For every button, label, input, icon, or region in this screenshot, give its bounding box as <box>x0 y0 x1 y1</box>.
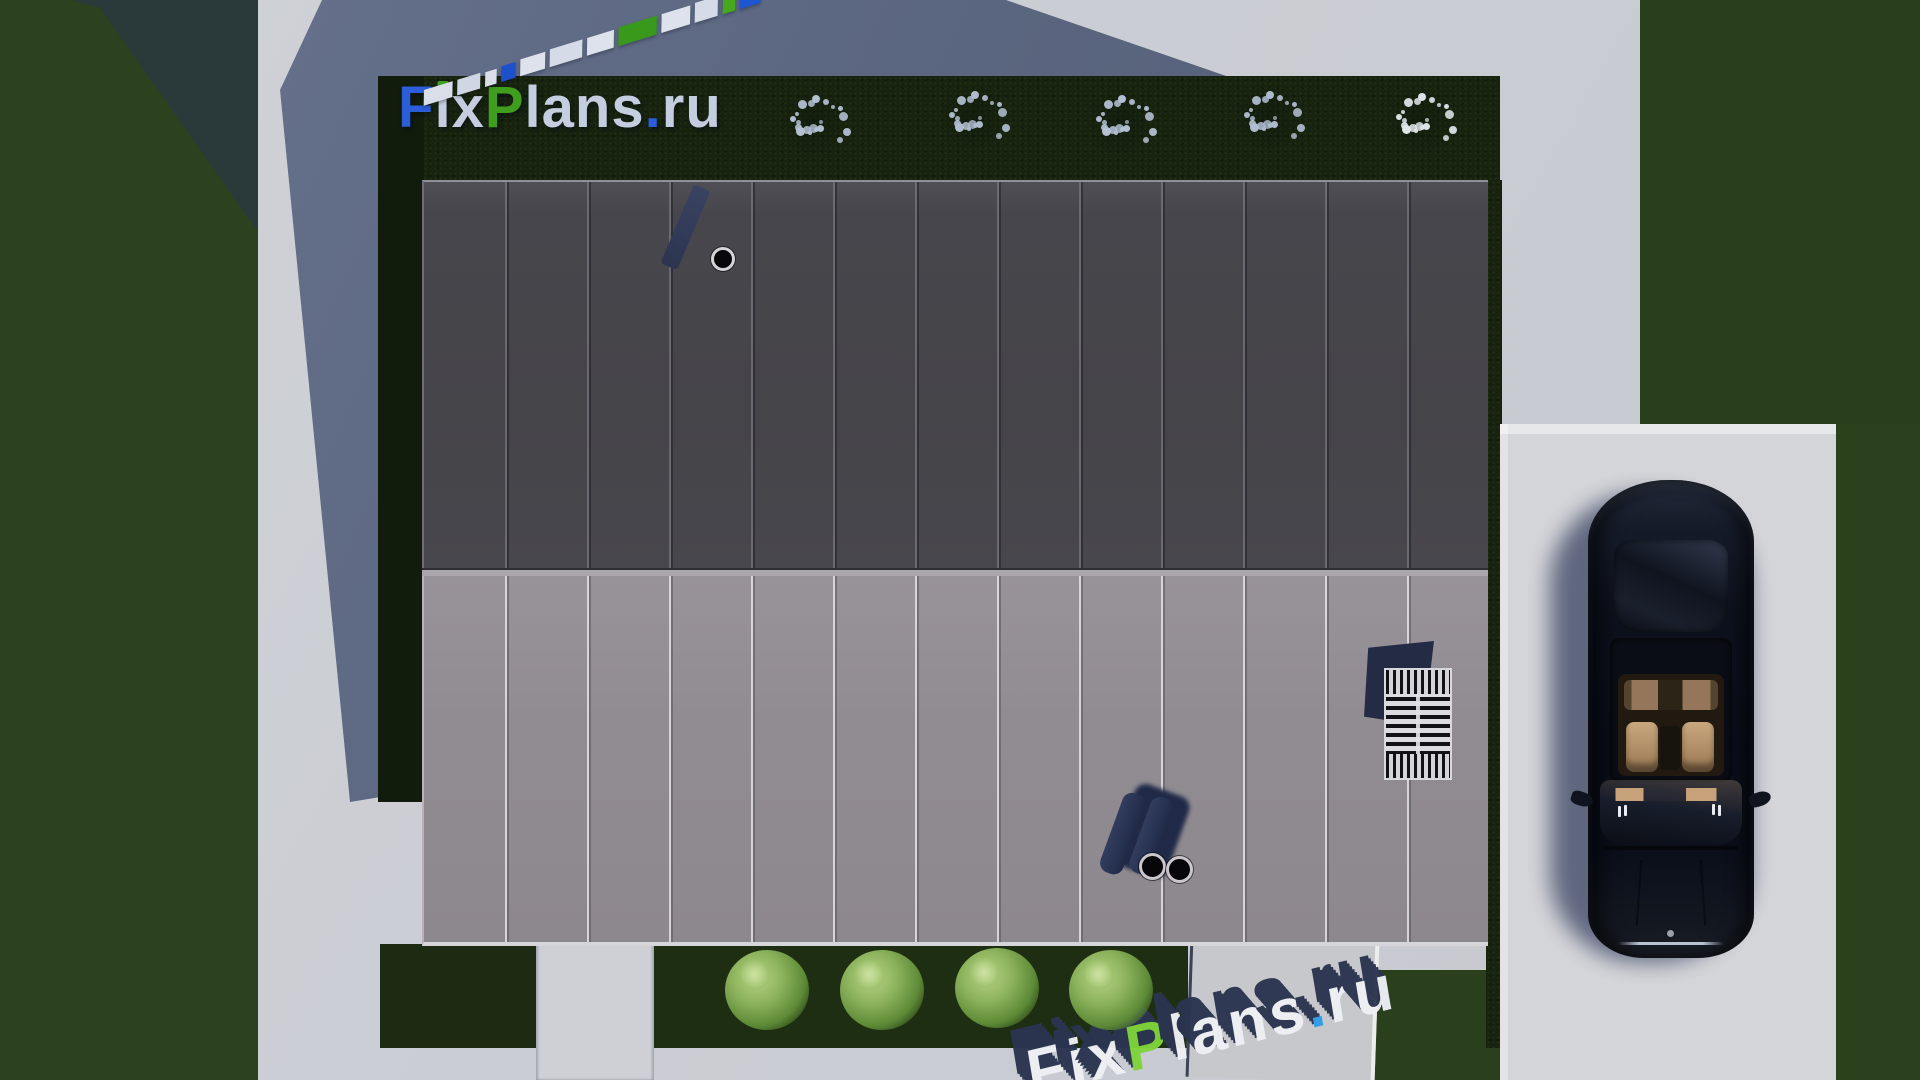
flower-dot <box>1114 100 1121 107</box>
flower-dot <box>1262 96 1269 103</box>
flower-dot <box>954 108 958 112</box>
flower-dot <box>1249 108 1253 112</box>
roof-seam <box>751 576 753 942</box>
roof-lower-section <box>422 576 1488 946</box>
vent-pipe-opening <box>1139 853 1166 880</box>
white-flower-bush <box>1078 82 1162 162</box>
flower-dot <box>1129 99 1135 105</box>
entry-walkway <box>536 944 654 1080</box>
flower-dot <box>1429 97 1435 103</box>
hedge-left <box>378 76 424 802</box>
flower-dot <box>1449 126 1457 134</box>
roof-seam <box>1325 182 1327 568</box>
flower-dot <box>838 106 843 111</box>
lawn-right-strip <box>1836 424 1920 1080</box>
flower-dot <box>1291 133 1297 139</box>
chimney-vent <box>711 247 735 271</box>
flower-dot <box>1437 103 1441 107</box>
roof-seam <box>1161 576 1163 942</box>
flower-dot <box>1143 137 1149 143</box>
flower-dot <box>997 102 1002 107</box>
roof-seam <box>915 576 917 942</box>
flower-dot <box>1277 95 1283 101</box>
car-hood-badge <box>1667 930 1674 937</box>
flower-dot <box>1402 118 1407 123</box>
flower-dot <box>1137 105 1141 109</box>
logo-letter: n <box>575 78 611 139</box>
logo-letter: . <box>645 78 662 139</box>
roof-seam <box>1325 576 1327 942</box>
flower-dot <box>843 128 851 136</box>
flower-dot <box>795 112 799 116</box>
flower-dot <box>831 105 835 109</box>
flower-dot <box>1443 135 1449 141</box>
roof-seam <box>997 576 999 942</box>
flower-dot <box>823 99 829 105</box>
windshield-reflection-mark <box>1618 806 1621 817</box>
parked-car <box>1588 480 1754 958</box>
car-center-console <box>1660 726 1680 770</box>
roof-seam <box>1079 576 1081 942</box>
striped-skylight <box>1386 670 1450 778</box>
logo-letter: u <box>685 78 721 139</box>
roof-seam <box>1243 576 1245 942</box>
car-front-bumper-trim <box>1618 942 1724 945</box>
roof-seam <box>505 182 507 568</box>
flower-dot <box>1101 112 1105 116</box>
roof-seam <box>751 182 753 568</box>
flower-dot <box>1285 101 1289 105</box>
aerial-render-scene: FıxPlans.ru FixPlans.ru <box>0 0 1920 1080</box>
roof-seam <box>669 576 671 942</box>
green-bush <box>840 950 924 1030</box>
logo-letter: l <box>525 78 542 139</box>
flower-dot <box>982 95 988 101</box>
car-cowl-line <box>1604 846 1738 850</box>
hedge-bottom-left <box>380 944 536 1048</box>
flower-dot <box>1144 106 1149 111</box>
car-windshield <box>1600 780 1742 844</box>
roof-junction-line <box>422 568 1488 576</box>
windshield-reflection-mark <box>1712 804 1715 815</box>
vent-pipe-opening <box>1166 856 1193 883</box>
white-flower-bush <box>772 82 856 162</box>
green-bush <box>1069 950 1153 1030</box>
logo-letter: r <box>662 78 686 139</box>
white-flower-bush <box>1226 78 1310 158</box>
flower-dot <box>796 120 801 125</box>
flower-dot <box>1149 128 1157 136</box>
roof-upper-section <box>422 180 1488 568</box>
car-dashboard-reflection <box>1608 788 1734 801</box>
flower-dot <box>1444 104 1449 109</box>
flower-dot <box>1414 98 1421 105</box>
roof-seam <box>587 182 589 568</box>
roof-seam <box>1407 182 1409 568</box>
flower-dot <box>1002 124 1010 132</box>
house-roof <box>422 180 1488 946</box>
roof-seam <box>1079 182 1081 568</box>
roof-seam <box>505 576 507 942</box>
flower-dot <box>1292 102 1297 107</box>
roof-seam <box>1161 182 1163 568</box>
car-front-seat <box>1682 722 1714 772</box>
flower-dot <box>967 96 974 103</box>
white-flower-bush <box>931 78 1015 158</box>
green-bush <box>725 950 809 1030</box>
flower-dot <box>1297 124 1305 132</box>
car-front-seat <box>1626 722 1658 772</box>
flower-dot <box>1102 120 1107 125</box>
roof-seam <box>1243 182 1245 568</box>
flower-dot <box>990 101 994 105</box>
windshield-reflection-mark <box>1624 805 1627 816</box>
flower-dot <box>996 133 1002 139</box>
logo-letter: a <box>542 78 575 139</box>
flower-dot <box>1401 110 1405 114</box>
roof-seam <box>833 182 835 568</box>
flower-dot <box>955 116 960 121</box>
logo-letter: P <box>485 78 525 139</box>
roof-seam <box>915 182 917 568</box>
logo-letter: s <box>611 78 644 139</box>
flower-dot <box>1250 116 1255 121</box>
car-panoramic-roof <box>1610 638 1732 782</box>
flower-dot <box>837 137 843 143</box>
car-cabin-interior <box>1618 674 1724 776</box>
flower-dot <box>808 100 815 107</box>
windshield-reflection-mark <box>1718 805 1721 816</box>
car-rear-window <box>1614 540 1728 632</box>
lawn-right-upper <box>1640 0 1920 424</box>
roof-seam <box>833 576 835 942</box>
white-flower-bush <box>1378 80 1462 160</box>
green-bush <box>955 948 1039 1028</box>
roof-seam <box>997 182 999 568</box>
car-rear-seats <box>1624 680 1718 710</box>
roof-seam <box>587 576 589 942</box>
